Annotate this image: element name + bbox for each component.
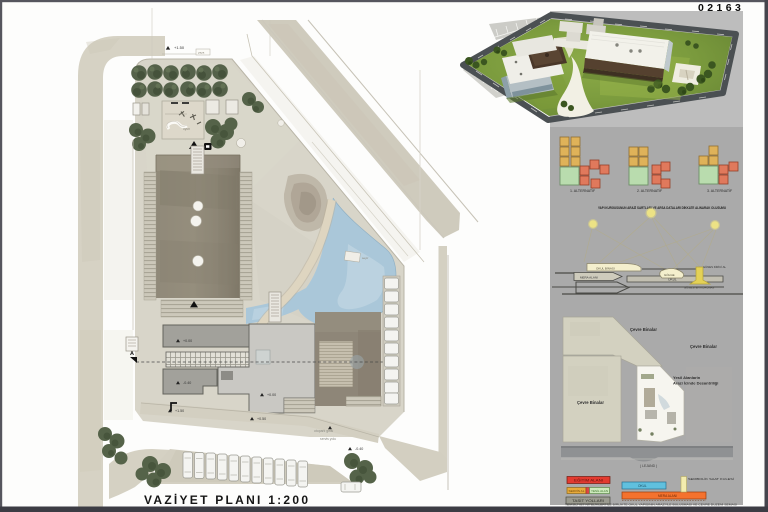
svg-text:TEMSİLİYET NİTELİKLERİ İLE BİR: TEMSİLİYET NİTELİKLERİ İLE BİRLİKTE OKUL… xyxy=(565,502,737,507)
svg-text:02163: 02163 xyxy=(698,2,744,14)
svg-text:OKUL: OKUL xyxy=(638,484,647,488)
svg-text:+0.50: +0.50 xyxy=(257,417,266,421)
svg-text:yaya: yaya xyxy=(198,51,205,55)
svg-text:3. ALTERNATİF: 3. ALTERNATİF xyxy=(707,188,733,193)
svg-text:Çevre Binalar: Çevre Binalar xyxy=(630,327,657,332)
svg-text:oyun: oyun xyxy=(183,127,190,131)
svg-text:YAPI KURGUSUNUN ARAZİ SARTLARI: YAPI KURGUSUNUN ARAZİ SARTLARI VE ARSA D… xyxy=(598,206,726,210)
svg-text:Çevre Binalar: Çevre Binalar xyxy=(690,344,717,349)
svg-text:( LEJAND ): ( LEJAND ) xyxy=(640,464,657,468)
svg-text:SERVİS AL: SERVİS AL xyxy=(569,488,585,493)
svg-text:VAZİYET PLANI 1:200: VAZİYET PLANI 1:200 xyxy=(144,492,308,507)
svg-text:OKUL BİNASI: OKUL BİNASI xyxy=(596,266,615,271)
svg-text:Çevre Binalar: Çevre Binalar xyxy=(577,400,604,405)
svg-text:Arazi İcinde Desantriliği: Arazi İcinde Desantriliği xyxy=(673,381,718,386)
svg-text:EĞİTİM ALANI: EĞİTİM ALANI xyxy=(574,478,603,483)
svg-text:1. ALTERNATİF: 1. ALTERNATİF xyxy=(570,188,596,193)
svg-text:GÖLGE: GÖLGE xyxy=(664,273,675,277)
svg-text:servis yolu: servis yolu xyxy=(320,437,336,441)
svg-text:otopark girisi: otopark girisi xyxy=(314,429,333,433)
svg-text:+0.00: +0.00 xyxy=(267,393,276,397)
svg-text:MERA ALANI: MERA ALANI xyxy=(658,494,677,498)
svg-text:SEMBOLİK SAAT KULESİ: SEMBOLİK SAAT KULESİ xyxy=(688,476,734,481)
svg-text:Yesil Alanlarin: Yesil Alanlarin xyxy=(673,375,701,380)
svg-text:A: A xyxy=(130,351,134,357)
svg-text:-0.40: -0.40 xyxy=(183,381,191,385)
svg-text:-0.40: -0.40 xyxy=(355,447,363,451)
svg-text:+1.50: +1.50 xyxy=(174,45,185,50)
svg-text:2. ALTERNATİF: 2. ALTERNATİF xyxy=(637,188,663,193)
svg-text:seyir: seyir xyxy=(362,256,368,260)
svg-text:+1.50: +1.50 xyxy=(175,409,184,413)
svg-text:YESİL ALAN: YESİL ALAN xyxy=(591,488,608,493)
svg-text:MERA ALANI: MERA ALANI xyxy=(580,276,598,280)
svg-text:+0.00: +0.00 xyxy=(183,339,192,343)
svg-text:GÜNES KİRİCİ AL: GÜNES KİRİCİ AL xyxy=(703,264,726,269)
